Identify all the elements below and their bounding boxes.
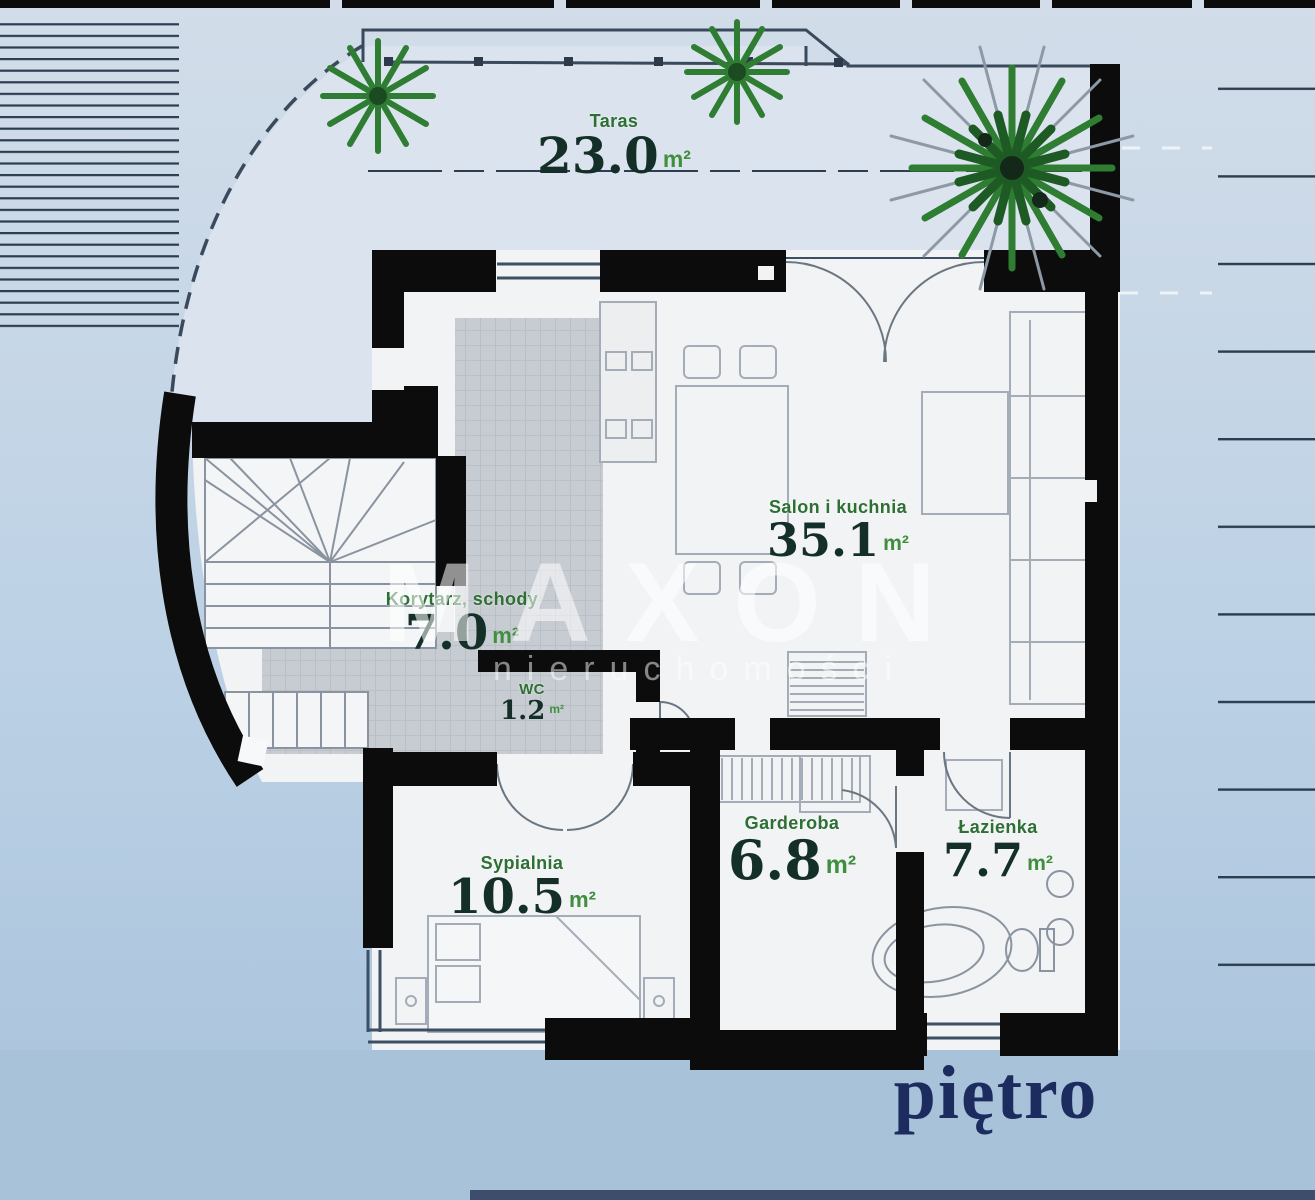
- ruler-lines-right: [1218, 84, 1315, 1056]
- bed: [428, 916, 640, 1032]
- hatch-lines-left: [0, 14, 186, 336]
- kitchen-counter: [600, 302, 656, 462]
- floor-plan-drawing: [0, 0, 1315, 1200]
- bottom-margin: [0, 1050, 1315, 1200]
- curved-wall-window: [238, 736, 269, 767]
- page-top-edge-marks: [0, 0, 1315, 8]
- plant-large: [891, 47, 1133, 289]
- floor-plan-page: Taras 23.0m² Salon i kuchnia 35.1m² Kory…: [0, 0, 1315, 1200]
- bottom-dark-bar: [470, 1190, 1315, 1200]
